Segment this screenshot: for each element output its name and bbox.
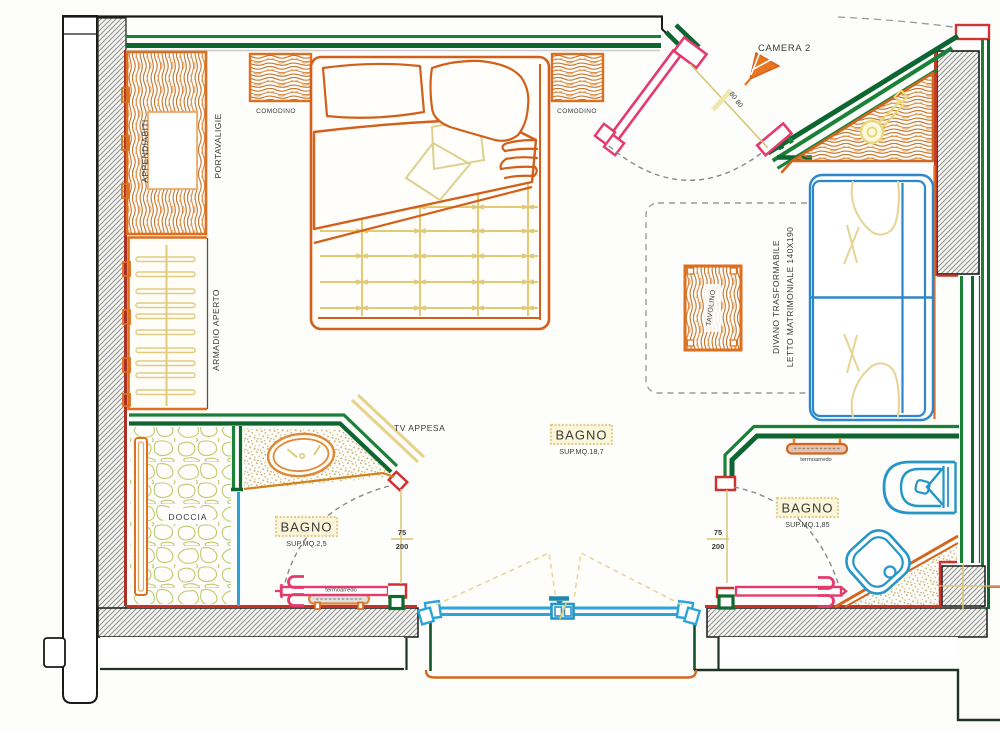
svg-text:75: 75 <box>398 528 406 537</box>
svg-text:termoarredo: termoarredo <box>800 457 832 463</box>
svg-text:ARMADIO APERTO: ARMADIO APERTO <box>211 289 221 371</box>
svg-text:CAMERA 2: CAMERA 2 <box>758 43 811 54</box>
svg-text:75: 75 <box>714 528 722 537</box>
svg-text:COMODINO: COMODINO <box>256 108 296 115</box>
svg-text:DIVANO TRASFORMABILE: DIVANO TRASFORMABILE <box>771 240 781 354</box>
svg-text:BAGNO: BAGNO <box>556 428 608 443</box>
svg-text:TV APPESA: TV APPESA <box>394 423 445 433</box>
svg-text:200: 200 <box>712 542 725 551</box>
svg-text:APPENDIABITI: APPENDIABITI <box>140 119 150 182</box>
svg-text:PORTAVALIGIE: PORTAVALIGIE <box>213 113 223 178</box>
svg-text:termoarredo: termoarredo <box>325 588 357 594</box>
svg-text:BAGNO: BAGNO <box>281 520 333 535</box>
svg-text:COMODINO: COMODINO <box>557 108 597 115</box>
svg-text:BAGNO: BAGNO <box>782 501 834 516</box>
svg-text:DOCCIA: DOCCIA <box>168 512 207 522</box>
svg-text:SUP.MQ.2,5: SUP.MQ.2,5 <box>286 539 326 548</box>
svg-text:SUP.MQ.18,7: SUP.MQ.18,7 <box>559 447 604 456</box>
svg-text:SUP.MQ.1,85: SUP.MQ.1,85 <box>785 520 830 529</box>
svg-text:LETTO MATRIMONIALE 140X190: LETTO MATRIMONIALE 140X190 <box>785 227 795 367</box>
svg-text:200: 200 <box>396 542 409 551</box>
